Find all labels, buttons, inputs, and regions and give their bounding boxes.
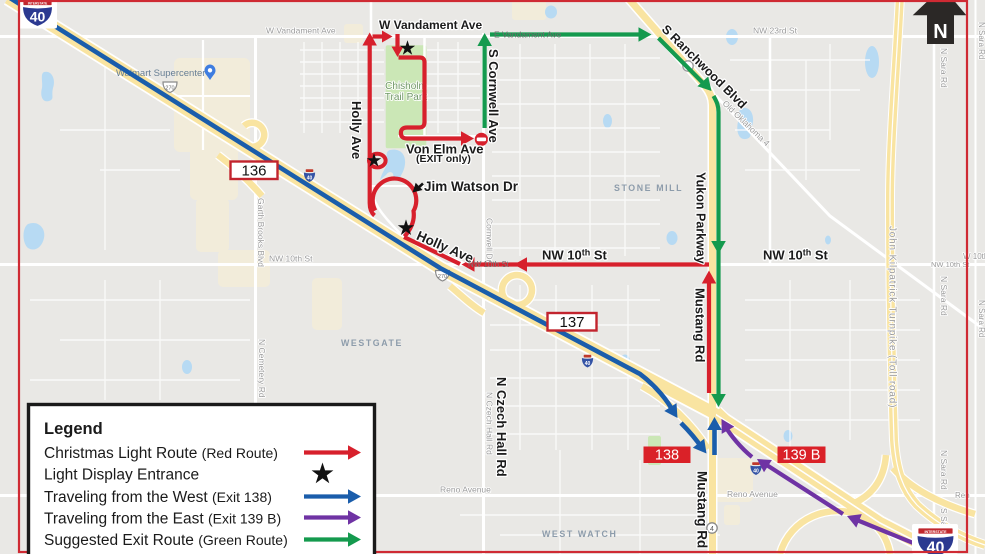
svg-text:NW 23rd St: NW 23rd St <box>753 26 798 36</box>
svg-text:Reno Avenue: Reno Avenue <box>727 489 778 499</box>
svg-text:270: 270 <box>438 274 447 280</box>
svg-text:N Czech Hall Rd: N Czech Hall Rd <box>494 377 509 477</box>
svg-text:S Cornwell Ave: S Cornwell Ave <box>486 49 501 143</box>
svg-text:Mustang Rd: Mustang Rd <box>695 471 710 548</box>
svg-text:40: 40 <box>307 176 313 182</box>
svg-text:Cornwell Dr: Cornwell Dr <box>485 218 495 263</box>
svg-text:139 B: 139 B <box>783 448 821 464</box>
svg-text:Light Display Entrance: Light Display Entrance <box>44 467 199 484</box>
svg-text:Trail Park: Trail Park <box>385 92 428 103</box>
svg-text:N: N <box>933 21 947 43</box>
svg-text:Christmas Light Route (Red Rou: Christmas Light Route (Red Route) <box>44 445 278 462</box>
svg-text:W Vandament Ave: W Vandament Ave <box>379 18 482 32</box>
svg-text:Garth Brooks Blvd: Garth Brooks Blvd <box>256 198 266 267</box>
svg-text:NW 10th St: NW 10th St <box>468 260 510 269</box>
svg-text:Traveling from the East (Exit: Traveling from the East (Exit 139 B) <box>44 511 281 528</box>
svg-text:40: 40 <box>753 469 759 475</box>
svg-text:STONE MILL: STONE MILL <box>614 183 683 193</box>
svg-text:W Vandament Ave: W Vandament Ave <box>266 26 336 36</box>
svg-text:INTERSTATE: INTERSTATE <box>924 530 947 534</box>
svg-text:4: 4 <box>710 526 714 533</box>
svg-text:N Cemetery Rd: N Cemetery Rd <box>257 339 267 398</box>
svg-text:Legend: Legend <box>44 420 103 438</box>
svg-text:N Sara Rd: N Sara Rd <box>939 276 949 316</box>
svg-text:WEST WATCH: WEST WATCH <box>542 529 617 539</box>
svg-text:138: 138 <box>655 448 679 464</box>
svg-text:N Sara Rd: N Sara Rd <box>939 450 949 490</box>
svg-text:NW 10th St: NW 10th St <box>269 254 313 264</box>
svg-text:Suggested Exit Route (Green Ro: Suggested Exit Route (Green Route) <box>44 532 288 549</box>
svg-text:Yukon Parkway: Yukon Parkway <box>694 172 708 264</box>
svg-text:N Sara Rd: N Sara Rd <box>977 300 985 337</box>
svg-text:(EXIT only): (EXIT only) <box>416 153 471 165</box>
svg-text:136: 136 <box>241 163 266 180</box>
svg-text:WESTGATE: WESTGATE <box>341 338 403 348</box>
svg-text:N Czech Hall Rd: N Czech Hall Rd <box>485 392 495 455</box>
svg-text:137: 137 <box>559 314 584 331</box>
svg-text:40: 40 <box>585 361 591 367</box>
svg-text:Traveling from the West (Exit: Traveling from the West (Exit 138) <box>44 489 272 506</box>
svg-text:Jim Watson Dr: Jim Watson Dr <box>424 179 519 194</box>
svg-text:NW 10th St: NW 10th St <box>542 248 608 263</box>
svg-text:NW 10th St: NW 10th St <box>763 248 829 263</box>
svg-text:John Kilpatrick Turnpike (Toll: John Kilpatrick Turnpike (Toll road) <box>887 226 898 408</box>
svg-text:Reno Avenue: Reno Avenue <box>440 485 491 495</box>
svg-text:N Sara Rd: N Sara Rd <box>977 22 985 59</box>
svg-text:Holly Ave: Holly Ave <box>349 101 364 159</box>
svg-text:270: 270 <box>165 86 174 92</box>
svg-text:40: 40 <box>30 9 46 25</box>
svg-text:E Vandament Ave: E Vandament Ave <box>494 30 562 40</box>
svg-text:Chisholm: Chisholm <box>385 81 427 92</box>
svg-text:INTERSTATE: INTERSTATE <box>28 2 48 6</box>
svg-text:Mustang Rd: Mustang Rd <box>693 288 708 362</box>
svg-text:NW 10th St: NW 10th St <box>931 260 970 269</box>
svg-text:N Sara Rd: N Sara Rd <box>939 48 949 88</box>
